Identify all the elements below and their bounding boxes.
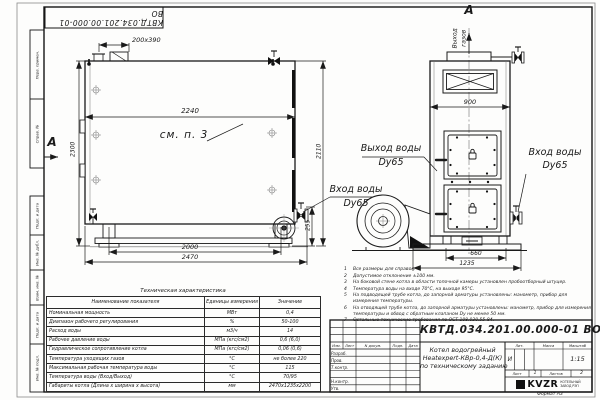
air-vent-stub	[92, 54, 105, 61]
tb-sheets-label: Листов	[541, 372, 571, 376]
doc-number: КВТД.034.201.00.000-01 ВО	[420, 325, 592, 337]
boiler-body-front	[430, 61, 510, 236]
tb-role-nkontr: Н.контр.	[331, 379, 349, 384]
tb-sheet-label: Лист	[505, 372, 529, 376]
product-name-3: по техническому заданию	[420, 363, 505, 370]
inlet-dn-front: Dy65	[522, 161, 588, 171]
tb-role-prov: Пров.	[331, 358, 343, 363]
logo-text: KVZR	[527, 379, 558, 390]
door-bolts	[449, 190, 495, 228]
margin-cell-perv-primen: Перв. примен.	[30, 30, 44, 99]
section-letter-side: А	[45, 136, 59, 149]
logo-mark-icon	[516, 380, 525, 389]
top-document-stamp: КВТД.034.201.00.000-01 ВО	[45, 7, 163, 28]
note-item: 5На подводящей трубе котла, до запорной …	[344, 293, 591, 305]
tb-mass-label: Масса	[534, 344, 563, 348]
side-view	[80, 51, 308, 247]
front-view	[352, 28, 527, 254]
format-note: Формат А3	[520, 393, 580, 398]
inlet-label-side: Вход воды	[328, 185, 384, 195]
notes-list: 1Все размеры для справок. 2Допустимое от…	[344, 267, 591, 325]
door-bolts	[449, 136, 495, 174]
spec-row: Температура воды (Вход/Выход)°С70/95	[47, 373, 321, 382]
outlet-label-front: Выход воды	[358, 144, 424, 154]
dim-hatch-label: 200х390	[132, 37, 161, 44]
dim-height-side: 2300	[71, 134, 78, 164]
dim-bottom-outer: 2470	[160, 254, 220, 261]
tb-lit-value: И	[505, 356, 515, 363]
inlet-dn-side: Dy65	[328, 199, 384, 209]
margin-cell-vzam-inv: Взам. инв. №	[30, 270, 44, 305]
dim-bottom-inner: 2000	[160, 244, 220, 251]
note-item: 2Допустимое отклонение ±100 мм.	[344, 274, 591, 280]
side-view-dimensions	[44, 43, 382, 265]
spec-row: Температура уходящих газов°Сне более 220	[47, 354, 321, 363]
margin-cell-inv-dubl: Инв. № дубл.	[30, 235, 44, 270]
spec-table: Наименование показателя Единицы измерени…	[46, 296, 321, 392]
top-hatch	[110, 52, 128, 61]
spec-row: Рабочее давление водыМПа (кгс/см2)0,6 (6…	[47, 336, 321, 345]
dim-base-inner: 660	[446, 251, 506, 258]
upper-door	[436, 131, 501, 179]
tb-scale-value: 1:15	[563, 355, 592, 363]
note-item: 1Все размеры для справок.	[344, 267, 591, 273]
product-name-1: Котел водогрейный	[420, 347, 505, 354]
note-item: 3На боковой стене котла в области топочн…	[344, 280, 591, 286]
spec-header-row: Наименование показателя Единицы измерени…	[47, 297, 321, 309]
outlet-dn-front: Dy65	[358, 158, 424, 168]
margin-cell-sprav-n: Справ. №	[30, 99, 44, 168]
door-lock-icon	[469, 203, 476, 213]
spec-row: Расход водым3/ч14	[47, 327, 321, 336]
tb-col-podp: Подп.	[390, 344, 406, 348]
flue-label-word2: газов	[462, 22, 469, 54]
spec-row: Номинальная мощностьМВт0,4	[47, 309, 321, 318]
tb-sheets-value: 2	[571, 371, 592, 376]
margin-cell-podp-data-1: Подп. и дата	[30, 196, 44, 235]
section-letter-front: А	[461, 4, 477, 17]
explosion-hatch	[443, 70, 497, 93]
lifting-lug-icon	[87, 59, 275, 66]
logo-sub-line2: ЗАВОД РЭП	[560, 385, 580, 389]
frame-bolts	[451, 181, 489, 183]
tb-col-izm: Изм.	[330, 344, 343, 348]
tb-col-list: Лист	[343, 344, 356, 348]
note-item: 6На отводящей трубе котла, до запорной а…	[344, 306, 591, 318]
inlet-label-front: Вход воды	[522, 148, 588, 158]
flue-label-word1: Выход	[453, 22, 460, 54]
inlet-valve-front-icon	[510, 206, 522, 224]
top-stamp-text: КВТД.034.201.00.000-01 ВО	[45, 9, 163, 27]
dim-width-front: 900	[440, 99, 500, 106]
dim-outlet-height: 255	[306, 210, 313, 240]
tb-col-ndokum: N докум.	[356, 344, 390, 348]
ref-note: см. п. 3	[158, 130, 210, 142]
tb-scale-label: Масштаб	[563, 344, 592, 348]
product-name-2: Heatexpert-КВр-0,4-Д(К)	[420, 355, 505, 362]
drawing-sheet: КВТД.034.201.00.000-01 ВО Перв. примен. …	[0, 0, 600, 400]
lower-door	[436, 185, 501, 232]
margin-cell-inv-podl: Инв. № подл.	[30, 344, 44, 392]
spec-row: Габариты котла (Длина х ширина х высота)…	[47, 382, 321, 391]
tb-col-data: Дата	[406, 344, 420, 348]
tb-role-utv: Утв.	[331, 386, 339, 391]
spec-row: Диапазон рабочего регулирования%50-100	[47, 318, 321, 327]
dim-total-height: 2110	[317, 136, 324, 166]
spec-row: Гидравлическое сопротивление котлаМПа (к…	[47, 345, 321, 354]
tb-sheet-value: 1	[529, 371, 541, 376]
door-lock-icon	[469, 149, 476, 159]
spec-row: Максимальная рабочая температура воды°С1…	[47, 364, 321, 373]
margin-cell-podp-data-2: Подп. и дата	[30, 305, 44, 344]
tb-lit-label: Лит.	[505, 344, 534, 348]
note-item: 4Температура воды на входе 70°С, на выхо…	[344, 287, 591, 293]
spec-table-title: Техническая характеристика	[46, 288, 320, 294]
boiler-body-side	[85, 61, 295, 224]
dim-width-side: 2240	[160, 108, 220, 116]
manufacturer-logo: KVZR КОТЕЛЬНЫЙ ЗАВОД РЭП	[506, 378, 591, 391]
ref-note-leader	[207, 124, 243, 141]
tb-role-razrab: Разраб.	[331, 351, 347, 356]
tb-role-tkontr: Т.контр.	[331, 365, 348, 370]
